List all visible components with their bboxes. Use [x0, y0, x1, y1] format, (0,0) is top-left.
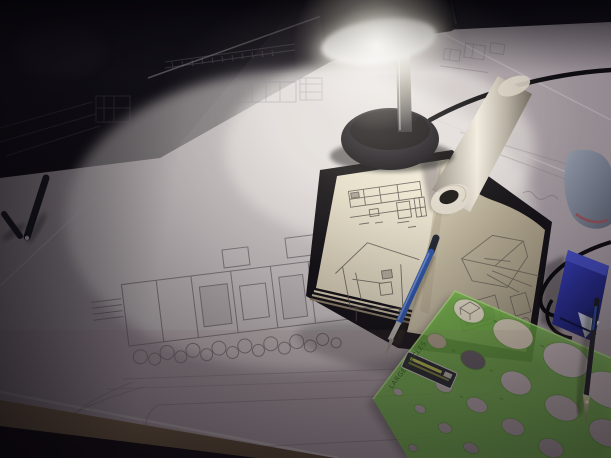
background-blob: [15, 25, 105, 75]
desk-photo: LARGE CIRCLES: [0, 0, 611, 458]
pen-cap-dot: [25, 236, 29, 240]
scene-graphic: LARGE CIRCLES: [0, 0, 611, 458]
